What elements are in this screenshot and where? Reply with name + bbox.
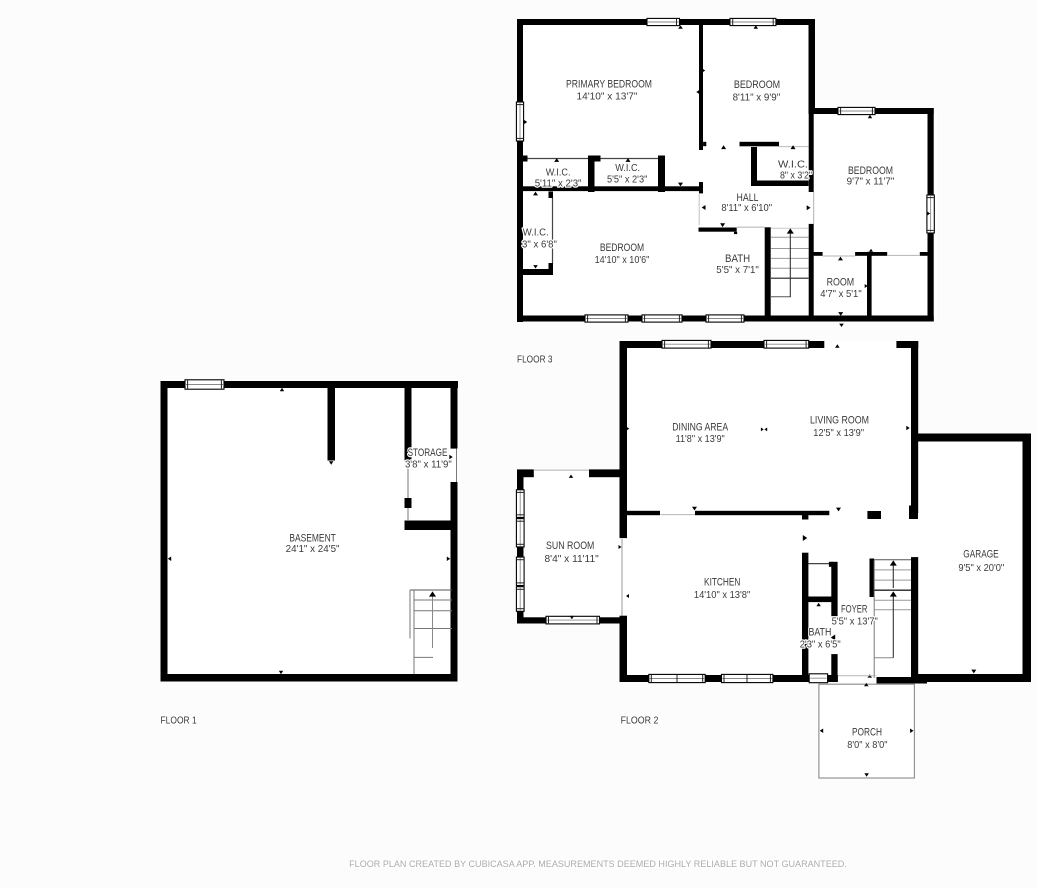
svg-text:2'3" x 6'5": 2'3" x 6'5" — [800, 638, 841, 650]
svg-text:8'4" x 11'11": 8'4" x 11'11" — [545, 553, 599, 565]
svg-text:BEDROOM: BEDROOM — [734, 79, 780, 91]
svg-text:5'5" x 2'3": 5'5" x 2'3" — [607, 174, 648, 185]
svg-text:14'10" x 13'7": 14'10" x 13'7" — [577, 90, 638, 102]
svg-text:FLOOR 1: FLOOR 1 — [161, 715, 197, 726]
svg-text:8'11" x 9'9": 8'11" x 9'9" — [733, 92, 781, 104]
svg-text:8'0" x 8'0": 8'0" x 8'0" — [847, 739, 887, 751]
svg-text:3'8" x 11'9": 3'8" x 11'9" — [405, 459, 452, 470]
svg-text:FLOOR PLAN CREATED BY CUBICASA: FLOOR PLAN CREATED BY CUBICASA APP. MEAS… — [349, 859, 847, 869]
svg-text:GARAGE: GARAGE — [963, 548, 998, 560]
svg-text:24'1" x 24'5": 24'1" x 24'5" — [286, 543, 340, 555]
svg-text:8'11" x 6'10": 8'11" x 6'10" — [721, 202, 772, 214]
svg-text:FLOOR 3: FLOOR 3 — [517, 354, 553, 365]
svg-text:9'5" x 20'0": 9'5" x 20'0" — [958, 562, 1004, 574]
svg-text:BATH: BATH — [725, 253, 750, 265]
svg-text:FLOOR 2: FLOOR 2 — [621, 715, 659, 726]
svg-text:5'5" x 13'7": 5'5" x 13'7" — [832, 615, 878, 627]
svg-text:12'5" x 13'9": 12'5" x 13'9" — [813, 427, 864, 439]
svg-text:9'7" x 11'7": 9'7" x 11'7" — [847, 175, 895, 187]
svg-text:W.I.C.: W.I.C. — [778, 159, 808, 170]
svg-text:11'8" x 13'9": 11'8" x 13'9" — [676, 433, 725, 445]
svg-text:PORCH: PORCH — [852, 727, 882, 739]
svg-text:14'10" x 10'6": 14'10" x 10'6" — [595, 254, 650, 266]
svg-text:STORAGE: STORAGE — [408, 447, 448, 459]
svg-text:W.I.C.: W.I.C. — [523, 228, 549, 239]
svg-text:PRIMARY BEDROOM: PRIMARY BEDROOM — [566, 79, 652, 91]
svg-text:BATH: BATH — [808, 627, 831, 639]
svg-text:FOYER: FOYER — [841, 604, 868, 616]
svg-text:DINING AREA: DINING AREA — [672, 422, 728, 434]
svg-text:SUN ROOM: SUN ROOM — [546, 540, 594, 552]
svg-text:4'7" x 5'1": 4'7" x 5'1" — [820, 288, 862, 300]
svg-text:LIVING ROOM: LIVING ROOM — [810, 415, 869, 427]
svg-text:ROOM: ROOM — [827, 277, 855, 289]
svg-text:14'10" x 13'8": 14'10" x 13'8" — [694, 589, 751, 601]
svg-text:5'5" x 7'1": 5'5" x 7'1" — [716, 264, 759, 276]
svg-text:W.I.C.: W.I.C. — [546, 167, 571, 178]
svg-text:8" x 3'2": 8" x 3'2" — [780, 170, 812, 181]
svg-text:KITCHEN: KITCHEN — [704, 577, 740, 589]
svg-text:3" x 6'8": 3" x 6'8" — [522, 239, 557, 250]
svg-text:5'11" x 2'3": 5'11" x 2'3" — [535, 178, 582, 189]
svg-text:BEDROOM: BEDROOM — [600, 242, 644, 254]
svg-text:W.I.C.: W.I.C. — [615, 163, 640, 174]
